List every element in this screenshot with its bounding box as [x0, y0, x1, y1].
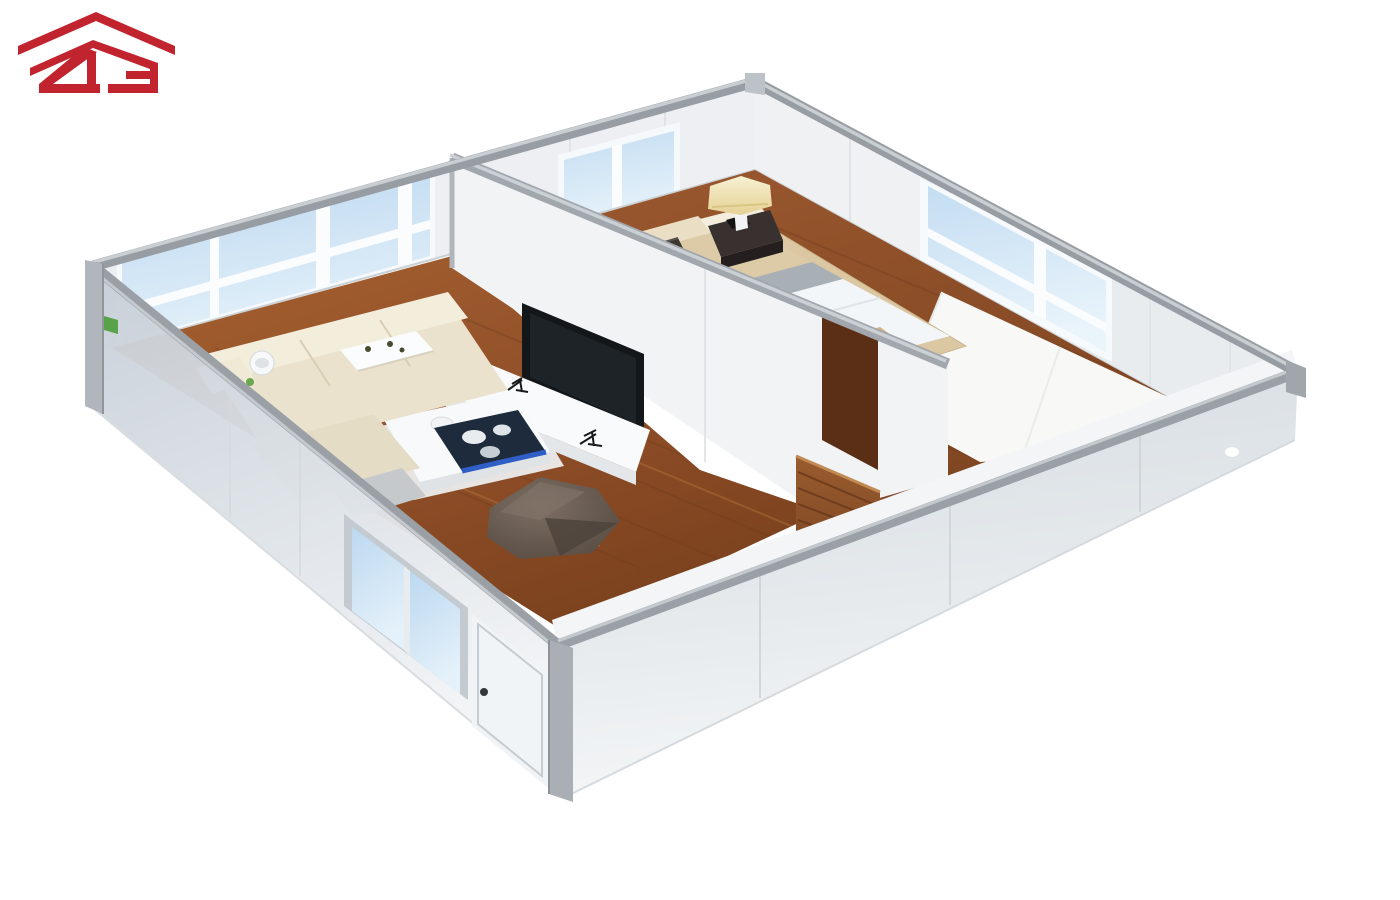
window-mullion: [398, 182, 412, 265]
render-canvas: 3D isometric cutaway rendering of a pref…: [0, 0, 1400, 900]
company-logo: 2G: [0, 0, 240, 130]
window-mullion: [210, 236, 219, 318]
logo-letter-g-crossbar: [126, 71, 158, 79]
door-handle: [480, 688, 488, 696]
corner-post: [549, 640, 573, 802]
window-mullion: [316, 204, 330, 289]
wall-vent: [1212, 494, 1224, 502]
wall-vent: [1225, 447, 1239, 457]
corner-cap: [1286, 360, 1306, 398]
container-house-render: 3D isometric cutaway rendering of a pref…: [0, 0, 1400, 900]
corner-cap: [745, 73, 765, 95]
corner-post: [85, 260, 103, 414]
logo-2g-mark: [18, 12, 175, 93]
window-divider: [404, 566, 410, 656]
logo-letter-g-stem: [87, 52, 96, 92]
window-mullion: [1034, 242, 1046, 320]
logo-letter-g-bottom: [108, 84, 158, 93]
